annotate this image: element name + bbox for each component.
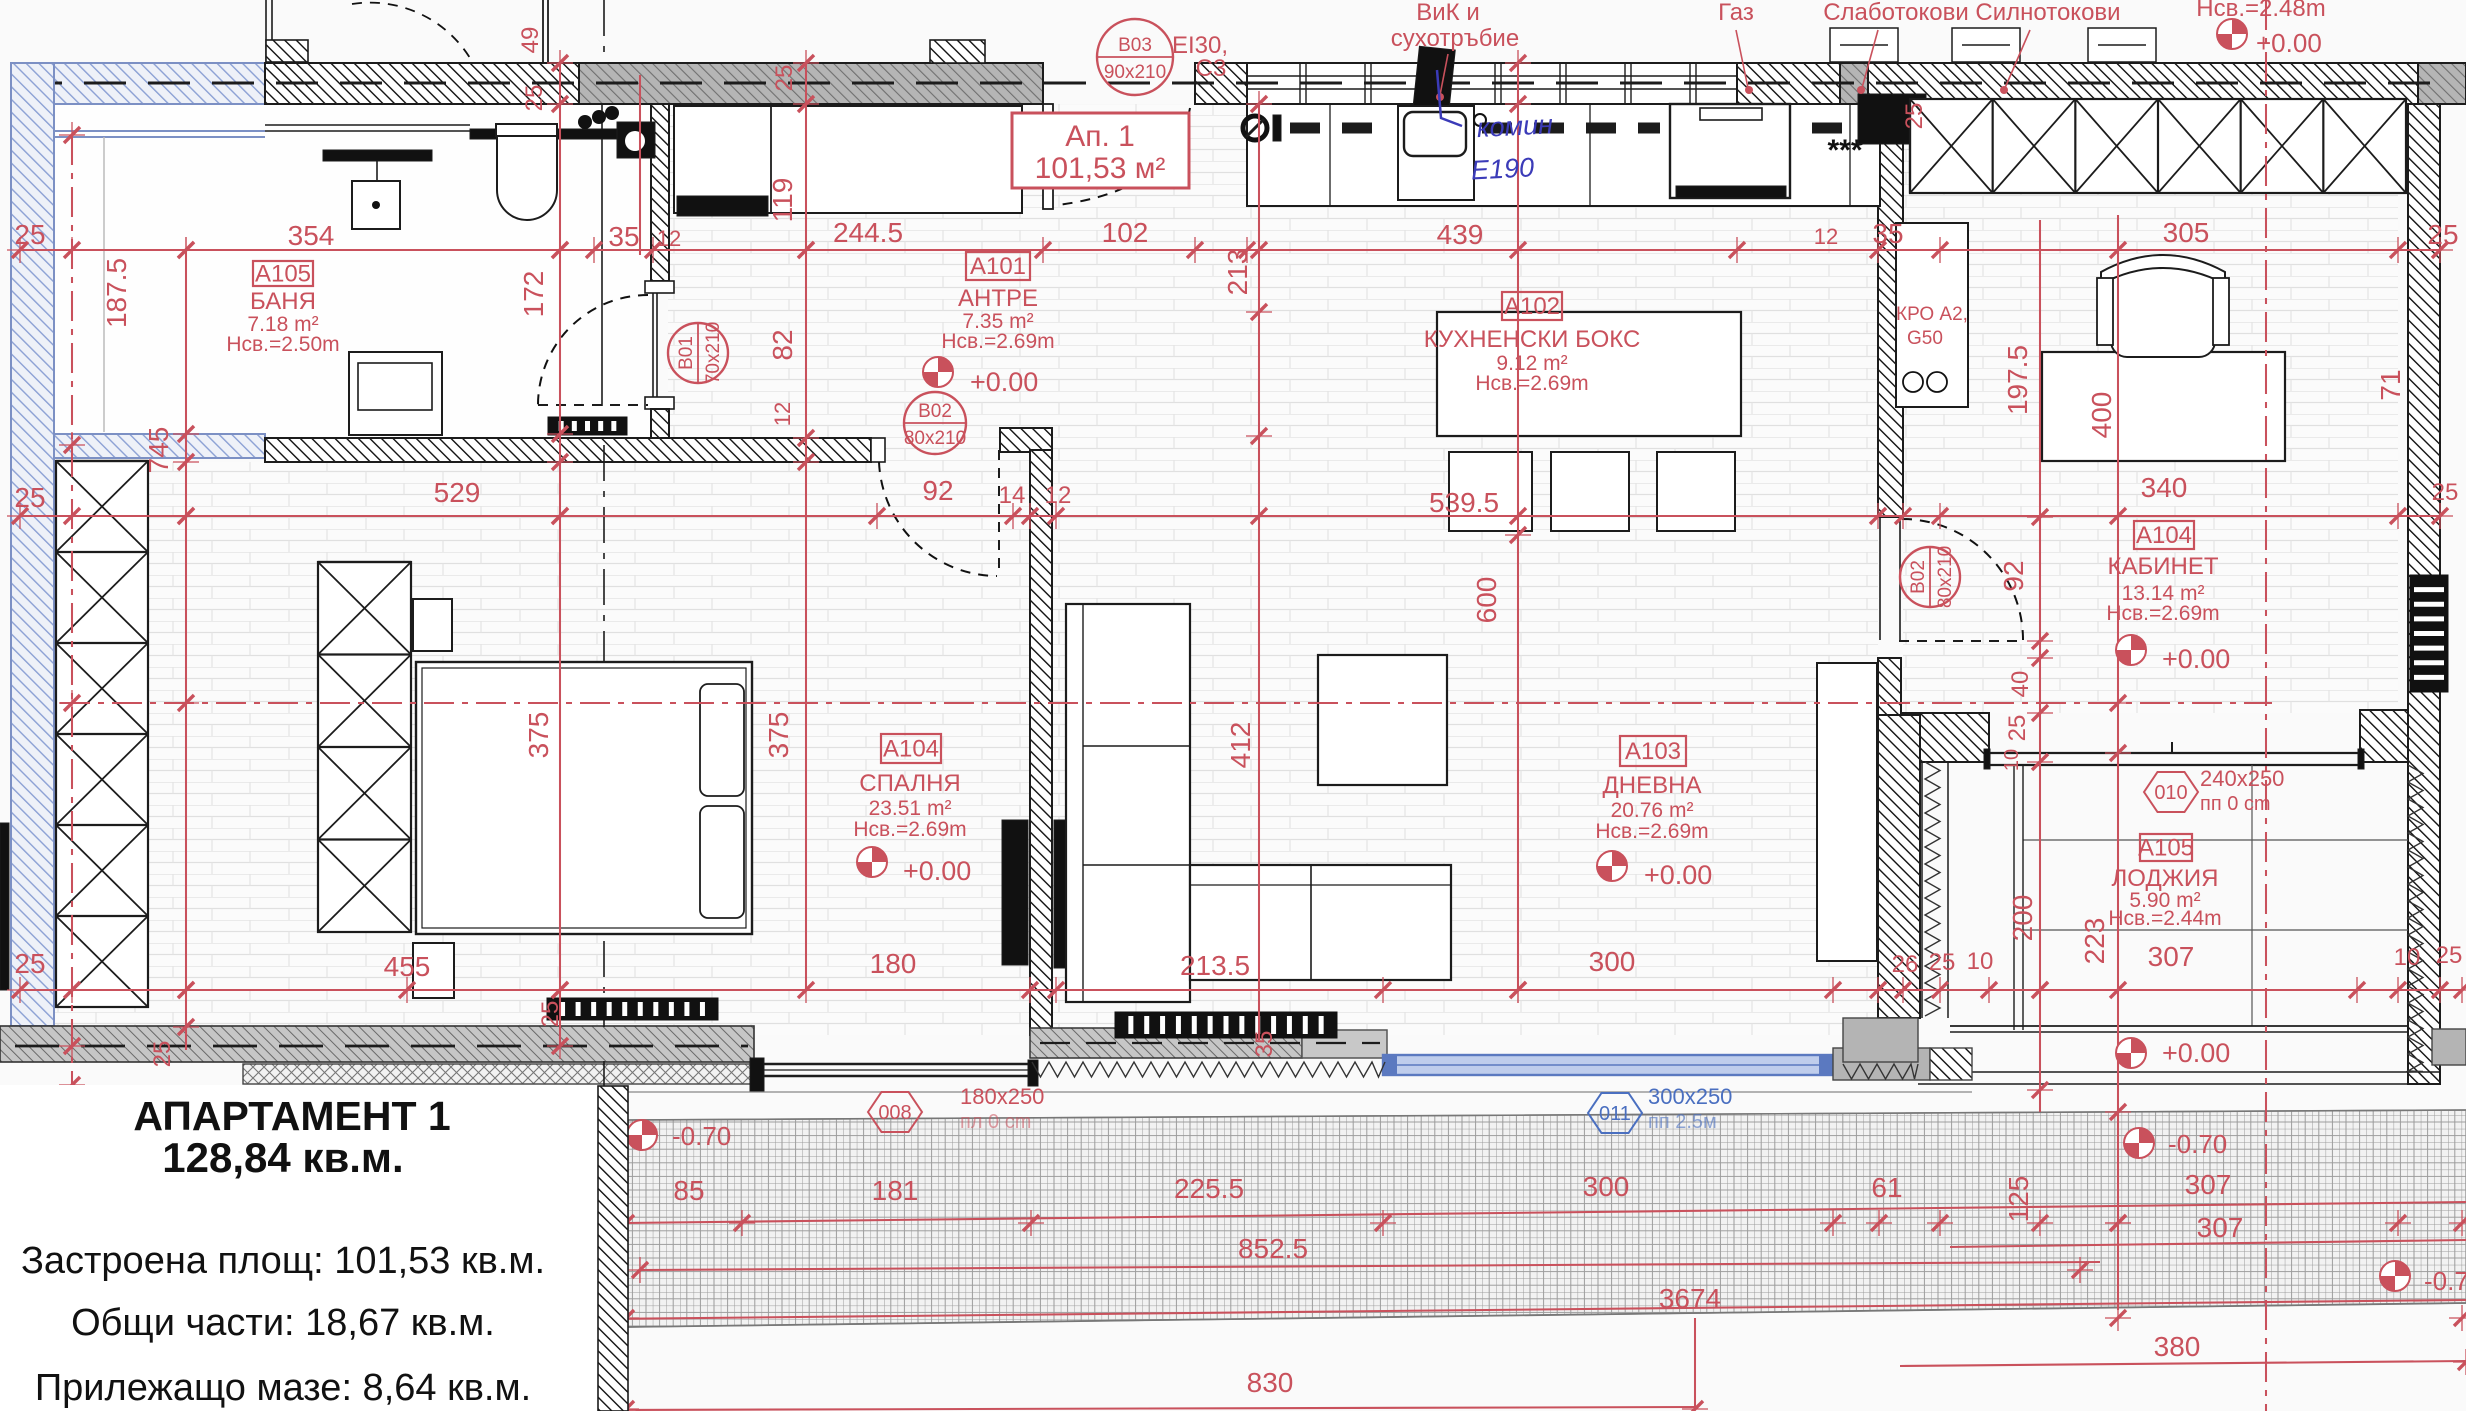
- svg-text:20.76 m²: 20.76 m²: [1611, 799, 1694, 822]
- svg-text:Нсв.=2.69m: Нсв.=2.69m: [1475, 372, 1588, 395]
- svg-text:213: 213: [1222, 249, 1253, 296]
- svg-text:412: 412: [1225, 722, 1256, 769]
- svg-text:Нсв.=2.69m: Нсв.=2.69m: [853, 818, 966, 841]
- svg-text:Прилежащо мазе: 8,64 кв.м.: Прилежащо мазе: 8,64 кв.м.: [35, 1367, 531, 1409]
- svg-text:213.5: 213.5: [1180, 950, 1250, 981]
- svg-text:12: 12: [657, 226, 681, 251]
- svg-text:25: 25: [521, 85, 548, 112]
- svg-text:745: 745: [143, 427, 174, 474]
- svg-text:12: 12: [1814, 224, 1838, 249]
- svg-text:380: 380: [2154, 1331, 2201, 1362]
- svg-text:82: 82: [767, 329, 798, 360]
- svg-text:40: 40: [2007, 671, 2034, 698]
- svg-text:340: 340: [2141, 472, 2188, 503]
- svg-text:010: 010: [2154, 782, 2187, 804]
- svg-text:G50: G50: [1907, 328, 1943, 349]
- svg-text:852.5: 852.5: [1238, 1233, 1308, 1264]
- svg-text:10: 10: [2394, 944, 2421, 971]
- svg-text:25: 25: [2436, 942, 2463, 969]
- svg-text:80x210: 80x210: [904, 428, 966, 449]
- svg-text:375: 375: [523, 712, 554, 759]
- svg-text:25: 25: [1901, 103, 1928, 130]
- svg-text:223: 223: [2079, 918, 2110, 965]
- svg-text:119: 119: [767, 178, 798, 223]
- svg-text:12: 12: [770, 402, 795, 426]
- svg-text:25: 25: [2432, 479, 2459, 506]
- svg-text:92: 92: [922, 475, 953, 506]
- svg-text:375: 375: [763, 712, 794, 759]
- svg-text:25: 25: [2004, 715, 2031, 742]
- svg-text:35: 35: [608, 221, 639, 252]
- svg-text:10: 10: [2001, 749, 2023, 771]
- svg-text:35: 35: [1872, 218, 1903, 249]
- svg-text:80x210: 80x210: [1935, 546, 1956, 608]
- svg-text:-0.70: -0.70: [2168, 1129, 2227, 1159]
- svg-text:25: 25: [537, 1001, 564, 1028]
- svg-text:A103: A103: [1625, 738, 1681, 765]
- svg-text:439: 439: [1437, 219, 1484, 250]
- svg-text:25: 25: [771, 65, 798, 92]
- svg-text:пп 0 cm: пп 0 cm: [2200, 793, 2271, 815]
- svg-text:10: 10: [1967, 948, 1994, 975]
- svg-text:187.5: 187.5: [101, 258, 132, 328]
- svg-text:181: 181: [872, 1175, 919, 1206]
- svg-text:172: 172: [518, 271, 549, 318]
- svg-text:101,53 м²: 101,53 м²: [1035, 152, 1166, 185]
- svg-text:300: 300: [1589, 946, 1636, 977]
- svg-text:пл 0 cm: пл 0 cm: [960, 1111, 1031, 1133]
- svg-text:Нсв.=2.44m: Нсв.=2.44m: [2108, 907, 2221, 930]
- svg-text:200: 200: [2007, 895, 2038, 942]
- svg-text:180x250: 180x250: [960, 1084, 1044, 1109]
- svg-text:61: 61: [1871, 1172, 1902, 1203]
- svg-text:ДНЕВНА: ДНЕВНА: [1603, 772, 1702, 799]
- svg-text:25: 25: [2427, 219, 2458, 250]
- svg-text:539.5: 539.5: [1429, 487, 1499, 518]
- svg-text:СПАЛНЯ: СПАЛНЯ: [859, 770, 961, 797]
- svg-text:комин: комин: [1476, 109, 1554, 143]
- svg-text:A105: A105: [2138, 835, 2194, 862]
- svg-text:180: 180: [870, 948, 917, 979]
- svg-text:307: 307: [2197, 1212, 2244, 1243]
- svg-text:25: 25: [14, 948, 45, 979]
- svg-text:455: 455: [384, 951, 431, 982]
- svg-text:КАБИНЕТ: КАБИНЕТ: [2108, 553, 2219, 580]
- svg-text:008: 008: [878, 1102, 911, 1124]
- svg-text:12: 12: [1045, 482, 1072, 509]
- svg-text:128,84 кв.м.: 128,84 кв.м.: [162, 1134, 403, 1181]
- svg-text:+0.00: +0.00: [2162, 644, 2230, 674]
- svg-text:Нсв.=2.69m: Нсв.=2.69m: [2106, 602, 2219, 625]
- svg-text:225.5: 225.5: [1174, 1173, 1244, 1204]
- svg-text:600: 600: [1471, 577, 1502, 624]
- svg-text:354: 354: [288, 220, 335, 251]
- svg-text:-0.70: -0.70: [672, 1121, 731, 1151]
- svg-text:26: 26: [1892, 951, 1919, 978]
- svg-text:АПАРТАМЕНТ 1: АПАРТАМЕНТ 1: [133, 1093, 450, 1139]
- svg-text:Ап. 1: Ап. 1: [1065, 120, 1135, 153]
- svg-text:БАНЯ: БАНЯ: [250, 288, 316, 315]
- svg-text:25: 25: [1929, 949, 1956, 976]
- svg-text:830: 830: [1247, 1367, 1294, 1398]
- svg-text:Нсв.=2.69m: Нсв.=2.69m: [1595, 820, 1708, 843]
- svg-text:85: 85: [673, 1175, 704, 1206]
- svg-text:Нсв.=2.50m: Нсв.=2.50m: [226, 333, 339, 356]
- svg-text:Общи части: 18,67 кв.м.: Общи части: 18,67 кв.м.: [71, 1302, 495, 1344]
- svg-text:A105: A105: [255, 261, 311, 288]
- svg-text:ВиК и: ВиК и: [1416, 0, 1479, 26]
- svg-text:529: 529: [434, 477, 481, 508]
- svg-text:49: 49: [517, 27, 544, 54]
- svg-text:011: 011: [1599, 1103, 1631, 1125]
- svg-text:92: 92: [1998, 560, 2029, 591]
- svg-text:125: 125: [2003, 1176, 2034, 1223]
- svg-text:+0.00: +0.00: [2256, 28, 2322, 58]
- svg-text:400: 400: [2086, 392, 2117, 439]
- svg-text:АНТРЕ: АНТРЕ: [958, 285, 1038, 312]
- svg-text:305: 305: [2163, 217, 2210, 248]
- svg-text:сухотръбие: сухотръбие: [1391, 25, 1519, 52]
- svg-text:25: 25: [149, 1041, 176, 1068]
- svg-text:КРО А2,: КРО А2,: [1896, 304, 1968, 325]
- svg-text:+0.00: +0.00: [903, 856, 971, 886]
- svg-text:70x210: 70x210: [703, 322, 724, 384]
- svg-text:35: 35: [1251, 1031, 1278, 1058]
- svg-text:C3: C3: [1196, 55, 1227, 82]
- svg-text:Силнотокови: Силнотокови: [1975, 0, 2120, 26]
- svg-text:300x250: 300x250: [1648, 1084, 1732, 1109]
- svg-text:307: 307: [2185, 1169, 2232, 1200]
- svg-text:-0.70: -0.70: [2424, 1266, 2466, 1296]
- svg-text:244.5: 244.5: [833, 217, 903, 248]
- svg-text:B01: B01: [676, 336, 697, 370]
- svg-text:B02: B02: [918, 401, 952, 422]
- svg-text:+0.00: +0.00: [1644, 860, 1712, 890]
- svg-text:300: 300: [1583, 1171, 1630, 1202]
- svg-text:14: 14: [999, 482, 1026, 509]
- svg-text:240x250: 240x250: [2200, 766, 2284, 791]
- svg-text:+0.00: +0.00: [2162, 1038, 2230, 1068]
- svg-text:+0.00: +0.00: [970, 367, 1038, 397]
- svg-text:197.5: 197.5: [2002, 345, 2033, 415]
- svg-text:Слаботокови: Слаботокови: [1823, 0, 1969, 26]
- svg-text:Е190: Е190: [1470, 152, 1535, 185]
- svg-text:102: 102: [1102, 217, 1149, 248]
- svg-text:307: 307: [2148, 941, 2195, 972]
- svg-text:71: 71: [2375, 369, 2406, 400]
- svg-text:90x210: 90x210: [1104, 62, 1166, 83]
- svg-text:A101: A101: [970, 253, 1026, 280]
- svg-text:Газ: Газ: [1718, 0, 1754, 26]
- svg-text:пп 2.5м: пп 2.5м: [1648, 1111, 1717, 1133]
- svg-text:3674: 3674: [1659, 1283, 1721, 1314]
- svg-text:ЛОДЖИЯ: ЛОДЖИЯ: [2112, 865, 2219, 892]
- svg-text:B03: B03: [1118, 35, 1152, 56]
- svg-text:Застроена площ: 101,53 кв.м.: Застроена площ: 101,53 кв.м.: [21, 1240, 545, 1282]
- svg-text:A104: A104: [2136, 522, 2192, 549]
- svg-text:A102: A102: [1504, 293, 1560, 320]
- svg-text:B02: B02: [1908, 560, 1929, 594]
- svg-text:КУХНЕНСКИ БОКС: КУХНЕНСКИ БОКС: [1424, 326, 1641, 353]
- svg-text:25: 25: [14, 219, 45, 250]
- svg-text:Нсв.=2.48m: Нсв.=2.48m: [2196, 0, 2325, 22]
- svg-text:25: 25: [14, 482, 45, 513]
- svg-text:Нсв.=2.69m: Нсв.=2.69m: [941, 330, 1054, 353]
- svg-text:A104: A104: [883, 736, 939, 763]
- svg-text:23.51 m²: 23.51 m²: [869, 797, 952, 820]
